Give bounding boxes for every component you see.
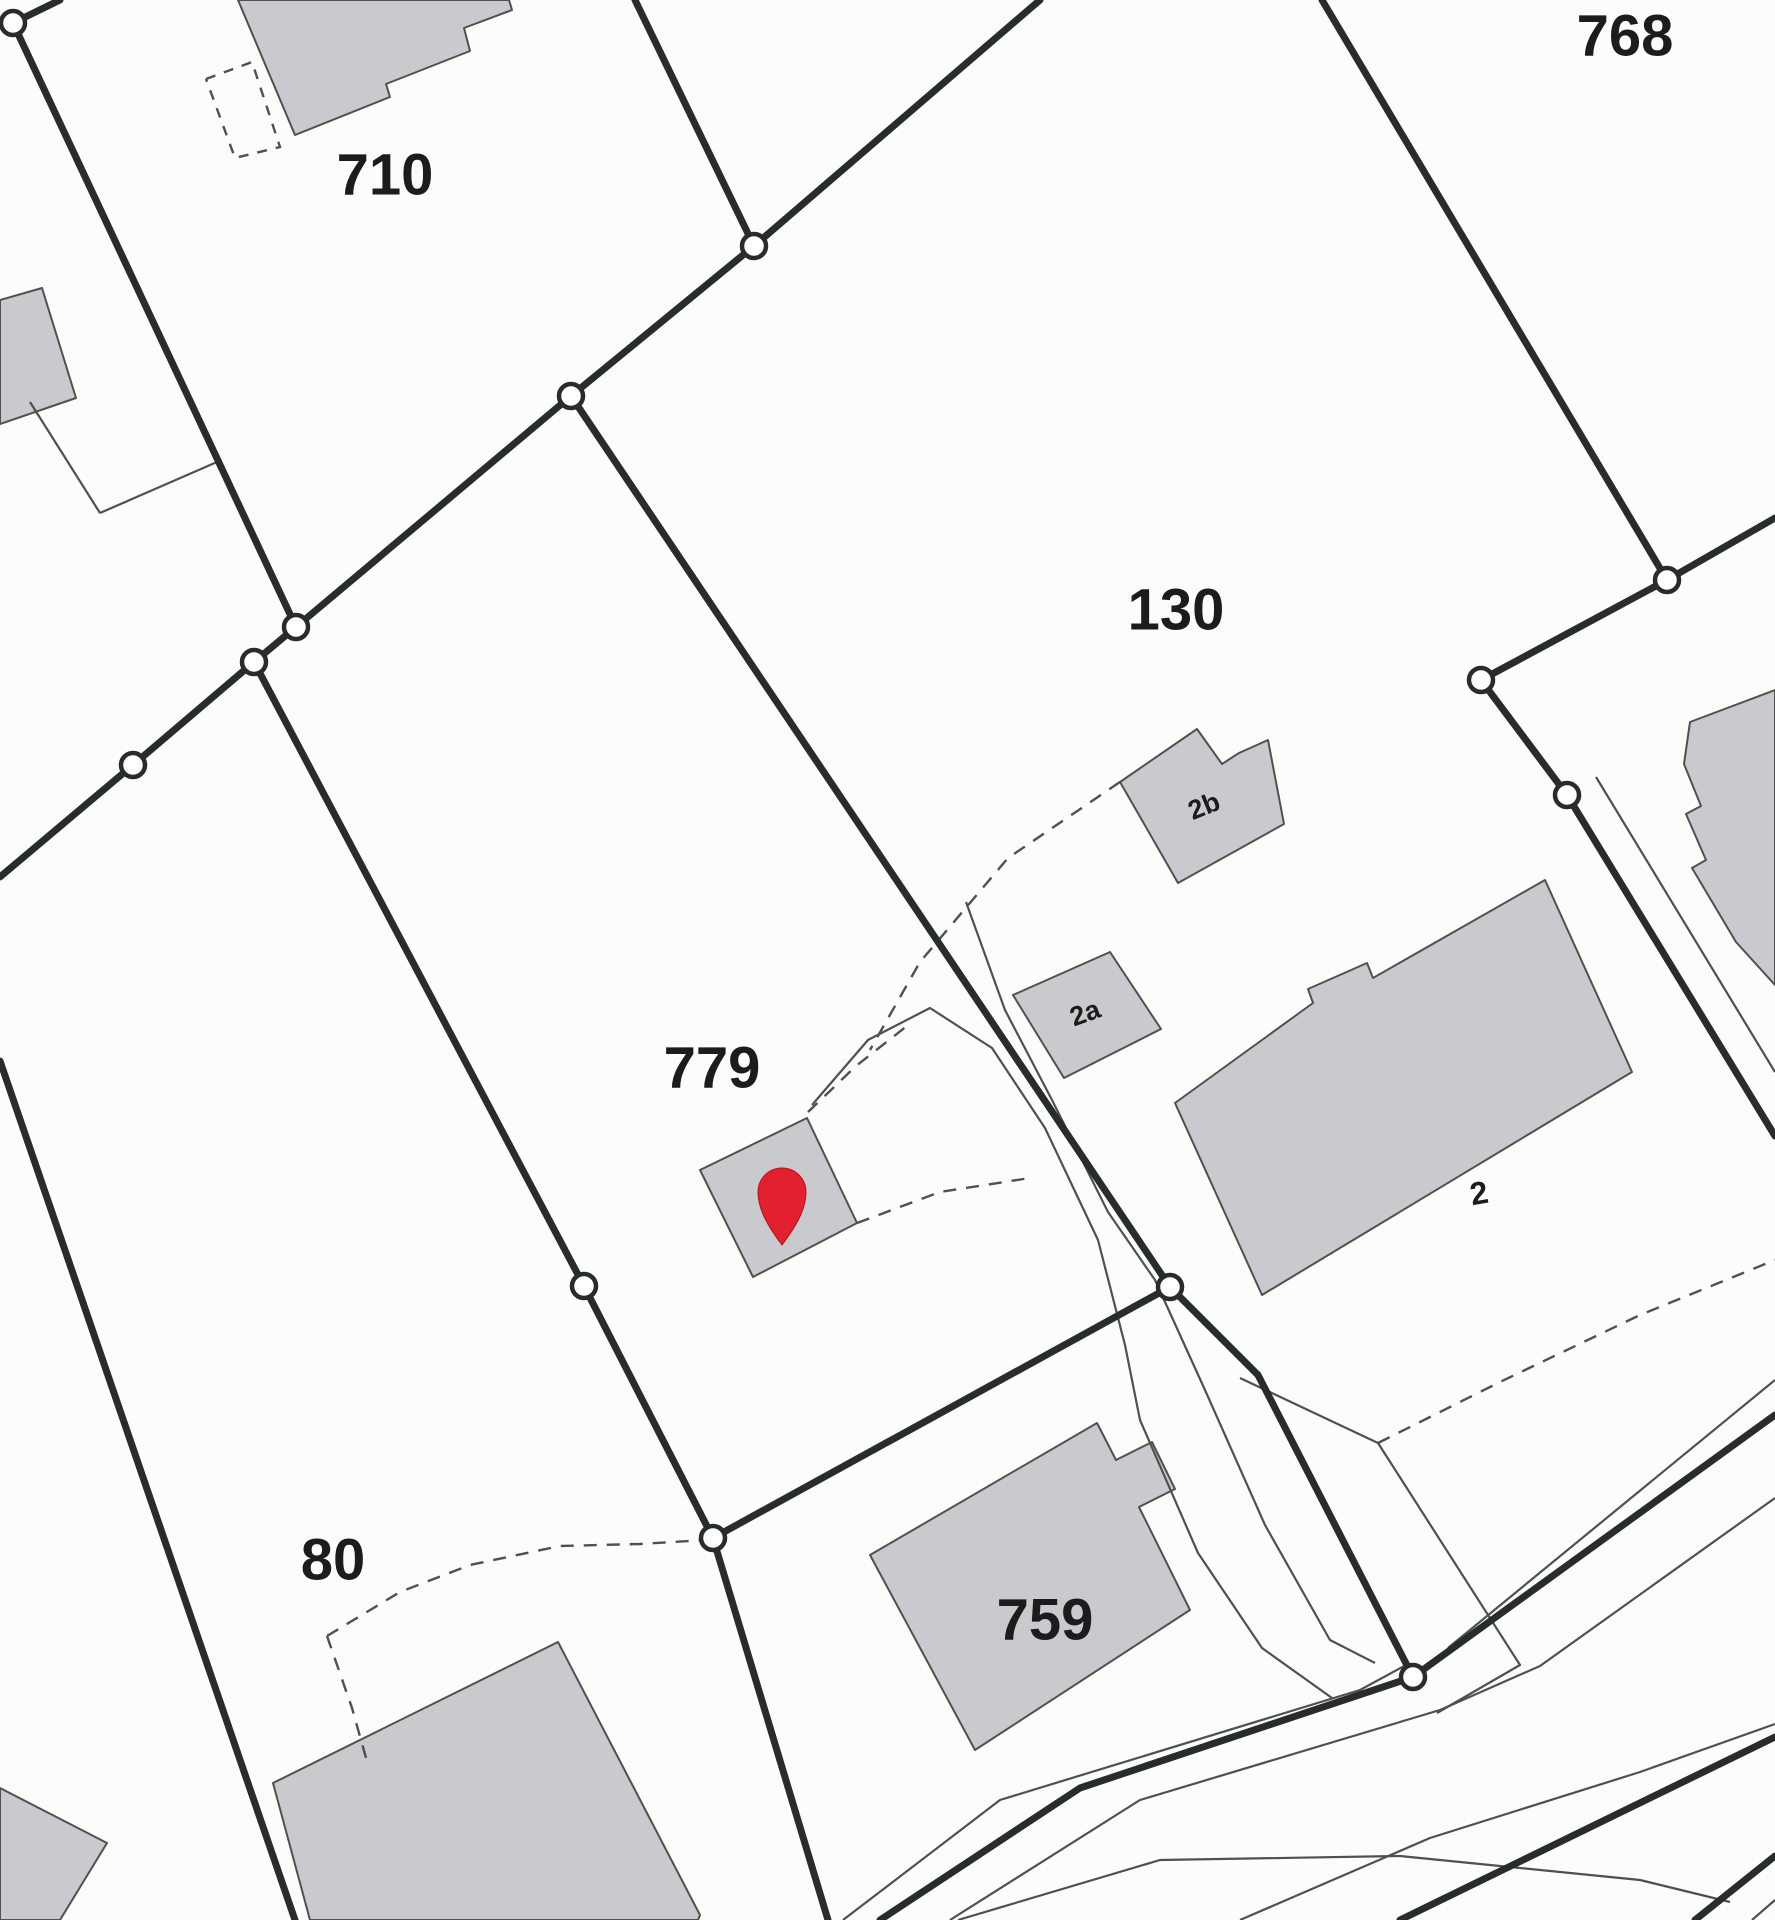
parcel-label-130: 130 bbox=[1128, 578, 1225, 643]
boundary-779-130 bbox=[571, 396, 1170, 1287]
road-ne-edge bbox=[1448, 1380, 1775, 1648]
boundary-768-south bbox=[1667, 518, 1775, 580]
buildings-layer bbox=[0, 0, 1775, 1920]
boundary-759-east bbox=[1170, 1287, 1413, 1677]
map-canvas: 710768130779807592b2a2 bbox=[0, 0, 1775, 1920]
boundary-d-northeast bbox=[754, 0, 1040, 246]
building-80 bbox=[273, 1642, 700, 1920]
road-merge-curve bbox=[958, 1856, 1730, 1920]
outline-west-parcel-a bbox=[30, 402, 100, 513]
boundary-vertex-icon bbox=[1401, 1665, 1425, 1689]
parcel-label-710: 710 bbox=[337, 143, 434, 208]
boundary-vertex-icon bbox=[1469, 668, 1493, 692]
boundary-south bbox=[713, 1538, 828, 1920]
building-east-edge bbox=[1684, 690, 1775, 985]
annex-710-dashed bbox=[206, 62, 280, 158]
boundary-vertex-icon bbox=[1158, 1275, 1182, 1299]
building-2 bbox=[1175, 880, 1632, 1295]
building-west-edge bbox=[0, 288, 76, 424]
boundary-80-west bbox=[0, 1061, 295, 1920]
building-710 bbox=[238, 0, 512, 135]
boundary-vertex-icon bbox=[701, 1526, 725, 1550]
boundary-vertex-icon bbox=[1555, 783, 1579, 807]
parcel-label-759: 759 bbox=[997, 1588, 1094, 1653]
outline-west-parcel-b bbox=[100, 462, 217, 513]
boundary-768-west bbox=[1322, 0, 1667, 580]
boundary-vertex-icon bbox=[121, 753, 145, 777]
parcel-label-80: 80 bbox=[301, 1528, 366, 1593]
road2-north-edge bbox=[1240, 1724, 1775, 1920]
boundary-vertex-icon bbox=[1655, 568, 1679, 592]
road2-centerline bbox=[1400, 1737, 1775, 1920]
curve-80 bbox=[327, 1540, 706, 1636]
boundary-vertex-icon bbox=[559, 384, 583, 408]
building-759 bbox=[870, 1423, 1190, 1750]
vertex-markers-layer bbox=[1, 11, 1679, 1689]
path-southeast bbox=[1378, 1260, 1775, 1443]
boundary-vertex-icon bbox=[1, 11, 25, 35]
boundary-vertex-icon bbox=[742, 234, 766, 258]
boundary-vertex-icon bbox=[284, 615, 308, 639]
road2-corner-edge bbox=[1752, 1900, 1775, 1920]
boundary-vertex-icon bbox=[242, 650, 266, 674]
parcel-label-768: 768 bbox=[1577, 4, 1674, 69]
boundary-779-west bbox=[254, 662, 713, 1538]
path-pin-northeast bbox=[808, 1022, 912, 1112]
building-label-2: 2 bbox=[1467, 1174, 1491, 1213]
map-page: 710768130779807592b2a2 bbox=[0, 0, 1775, 1920]
road-nw-edge bbox=[843, 1665, 1406, 1920]
boundary-vertex-icon bbox=[572, 1274, 596, 1298]
boundary-nw bbox=[13, 0, 296, 627]
boundary-a-b bbox=[1481, 580, 1667, 680]
parcel-label-779: 779 bbox=[664, 1036, 761, 1101]
building-sw-corner bbox=[0, 1788, 107, 1920]
path-pin-east bbox=[857, 1178, 1030, 1223]
